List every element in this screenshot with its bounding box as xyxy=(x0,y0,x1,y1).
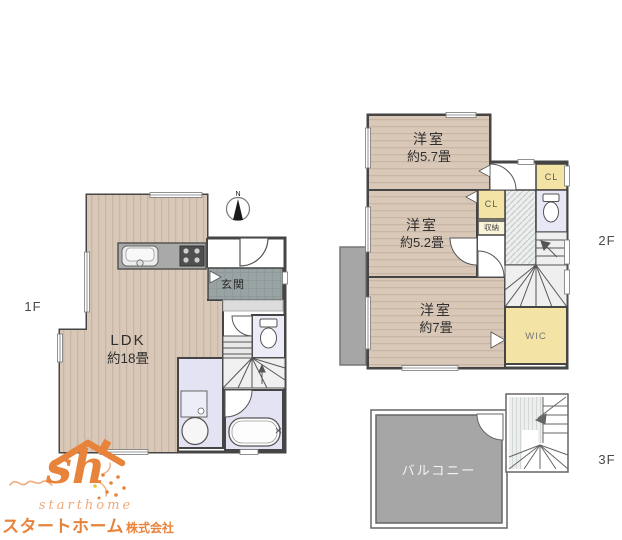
2f-room2-size: 約5.2畳 xyxy=(366,235,478,252)
compass-icon xyxy=(227,198,250,221)
washbasin-icon xyxy=(182,418,208,445)
genkan-label: 玄関 xyxy=(212,278,254,292)
ldk-size: 約18畳 xyxy=(93,350,163,367)
ldk-room-label: LDK 約18畳 xyxy=(93,331,163,367)
logo-company-name: スタートホーム xyxy=(2,517,124,536)
company-logo: sh starthome スタートホーム株式会社 xyxy=(0,428,185,540)
3f-balcony-label: バルコニー xyxy=(376,463,502,480)
toilet-icon-2f xyxy=(543,194,559,222)
2f-closet1-label: CL xyxy=(536,172,567,184)
2f-room1-size: 約5.7畳 xyxy=(374,149,484,166)
kitchen-counter xyxy=(118,243,206,269)
logo-name-en: starthome xyxy=(36,498,136,513)
2f-roof-below xyxy=(340,247,366,365)
floor2-label: 2F xyxy=(592,233,622,250)
logo-name-ja: スタートホーム株式会社 xyxy=(2,512,187,537)
floorplan-page: 1F 2F 3F LDK 約18畳 玄関 洋室 約5.7畳 洋室 約5.2畳 洋… xyxy=(0,0,622,540)
2f-room1-label: 洋室 約5.7畳 xyxy=(374,131,484,166)
2f-hall-floor xyxy=(505,190,536,265)
2f-room3-label: 洋室 約7畳 xyxy=(378,302,494,337)
floor1-label: 1F xyxy=(18,299,48,316)
2f-room2-name: 洋室 xyxy=(366,217,478,235)
floor-3f-plan xyxy=(371,394,568,528)
2f-room2-label: 洋室 約5.2畳 xyxy=(366,217,478,252)
2f-room1-name: 洋室 xyxy=(374,131,484,149)
kitchen-stove-icon xyxy=(180,246,204,266)
2f-wic-label: WIC xyxy=(505,331,567,343)
2f-room3-size: 約7畳 xyxy=(378,320,494,337)
2f-room3-name: 洋室 xyxy=(378,302,494,320)
1f-hall-strip xyxy=(223,300,283,311)
toilet-icon-1f xyxy=(260,319,277,348)
2f-closet2-label: CL xyxy=(478,199,505,211)
compass-north-label: N xyxy=(232,191,244,200)
floor3-label: 3F xyxy=(592,452,622,469)
logo-company-suffix: 株式会社 xyxy=(126,521,174,535)
ldk-name: LDK xyxy=(93,331,163,350)
logo-monogram: sh xyxy=(46,444,116,490)
floor-1f-plan xyxy=(58,193,288,455)
2f-storage-label: 収納 xyxy=(478,223,505,233)
stairs-3f xyxy=(506,394,568,472)
washing-machine-drain xyxy=(198,408,204,414)
